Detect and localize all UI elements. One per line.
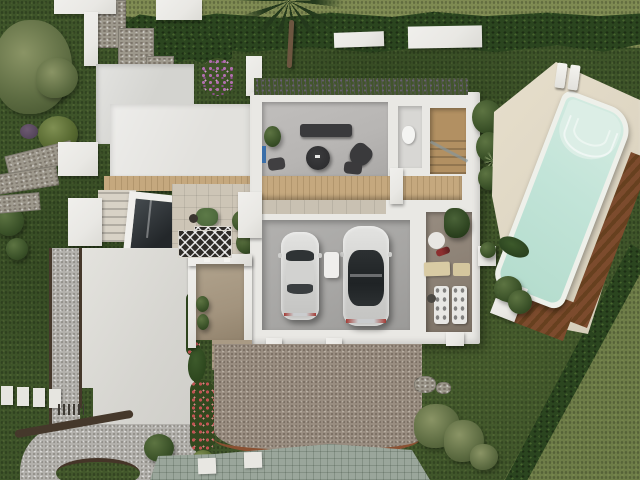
white-wall-top-right — [408, 25, 482, 48]
paver-white-pad-a — [198, 458, 217, 475]
shrub-left-b — [6, 238, 28, 260]
gym-plant — [444, 208, 470, 238]
gym-equipment-b — [452, 286, 467, 324]
wall-on-deck — [390, 168, 403, 204]
car-right-mirror-l — [340, 252, 344, 257]
coffee-table-decor — [315, 155, 320, 158]
side-table — [189, 214, 198, 223]
entry-shrub-a — [196, 296, 209, 312]
car-left-mirror-l — [278, 253, 281, 258]
flower-patch-purple — [200, 58, 236, 96]
gym-mat-b — [453, 263, 470, 276]
car-left — [281, 232, 319, 320]
patio-tile-strip — [262, 200, 386, 214]
pool-planter-plant-b — [508, 290, 532, 314]
white-block-top — [156, 0, 202, 20]
pouf-right — [343, 161, 362, 175]
boulder-a — [414, 376, 436, 393]
grass-island — [56, 458, 140, 480]
car-right-glass-roof — [348, 250, 385, 306]
car-left-taillights — [284, 313, 316, 317]
wall-block-left — [68, 198, 102, 246]
wall-stub-c — [446, 332, 464, 346]
entry-light-a — [204, 258, 210, 262]
coffee-table-round — [306, 146, 330, 170]
living-room-plant — [264, 126, 281, 147]
concrete-terrace-pad — [76, 246, 194, 434]
entry-wall-left — [188, 256, 196, 348]
entry-shrub-b — [197, 314, 209, 330]
white-bench-top — [334, 31, 384, 48]
car-left-mirror-r — [318, 253, 321, 258]
aerial-villa-render — [0, 0, 640, 480]
car-right-mirror-r — [388, 252, 392, 257]
gym-kettlebell — [427, 294, 436, 303]
lavender-strip — [254, 78, 468, 95]
drain-grate — [58, 404, 84, 415]
car-right — [343, 226, 389, 326]
flower-bed-lower — [190, 380, 214, 452]
car-right-roof-bar — [350, 274, 381, 277]
lounge-chair-green — [196, 208, 218, 226]
sofa — [300, 124, 352, 137]
purple-shrub — [20, 124, 38, 139]
wooden-deck-strip — [262, 176, 462, 200]
garage-pillar — [324, 252, 339, 278]
car-right-taillights — [346, 319, 386, 323]
blue-wall-art — [262, 146, 266, 163]
pouf-left — [267, 157, 286, 171]
tiled-walkway — [178, 230, 232, 258]
entry-wall-right — [244, 256, 252, 348]
roof-step-block — [58, 142, 98, 176]
car-left-roof — [286, 261, 313, 284]
stepping-stone-3 — [33, 388, 45, 407]
entry-light-b — [224, 258, 230, 262]
gym-round-rug — [428, 232, 445, 249]
flat-roof-lower — [110, 104, 266, 176]
car-left-rear-window — [287, 284, 314, 294]
gym-mat-a — [424, 262, 450, 277]
gym-equipment-a — [434, 286, 449, 324]
stepping-stone-2 — [17, 387, 29, 406]
wall-west-nub — [238, 192, 262, 238]
white-wall-vertical — [84, 12, 98, 66]
east-planter-plant — [480, 242, 496, 258]
stepping-stone-1 — [1, 386, 13, 405]
path-edging-right — [79, 248, 82, 408]
toilet — [402, 126, 415, 144]
paver-white-pad-b — [244, 452, 263, 469]
car-left-windshield — [286, 250, 315, 261]
boulder-b — [436, 382, 451, 394]
